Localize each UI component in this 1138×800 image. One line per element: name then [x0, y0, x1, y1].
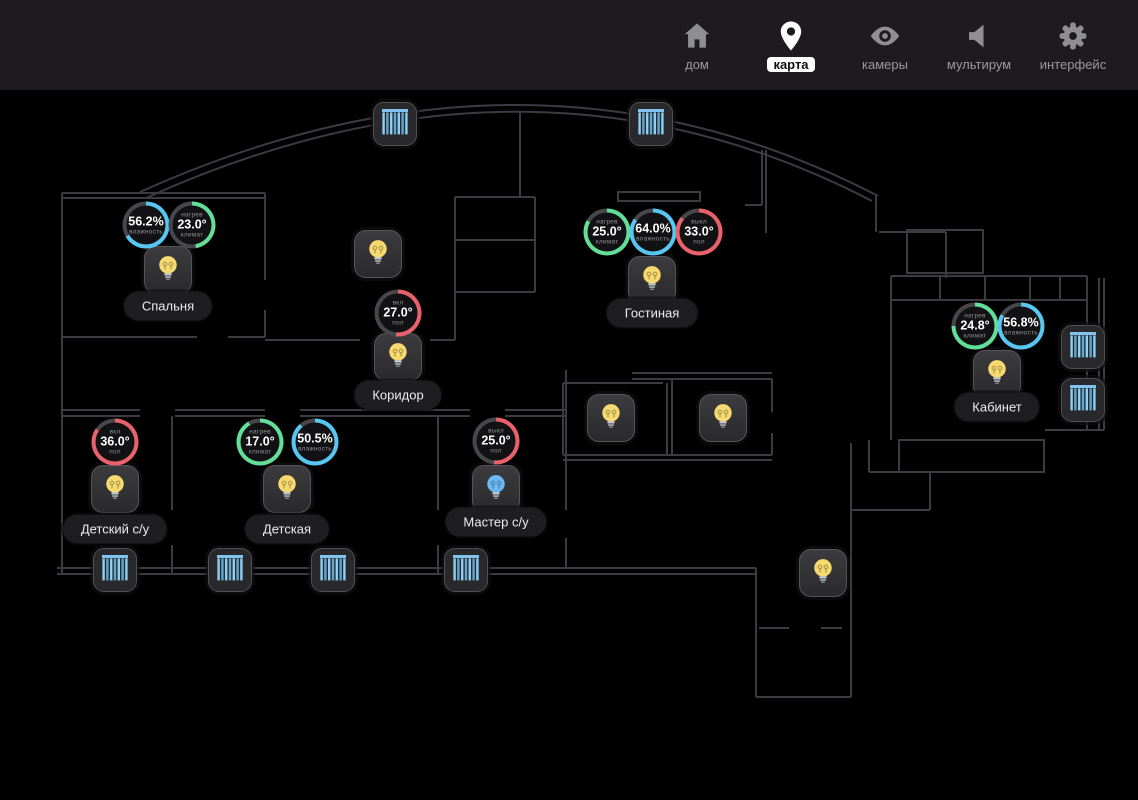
gauge-value: 24.8°	[960, 320, 989, 333]
gauge-readout: вкл 36.0° пол	[96, 423, 135, 462]
blinds-icon	[1069, 331, 1097, 364]
light-bulb-icon	[153, 253, 183, 288]
blinds-button-0[interactable]	[373, 102, 417, 146]
nav-item-interface[interactable]: интерфейс	[1026, 19, 1120, 72]
speaker-icon	[962, 19, 996, 53]
nav-item-multiroom[interactable]: мультирум	[932, 19, 1026, 72]
room-label-5[interactable]: Мастер с/у	[445, 508, 546, 537]
gauge-readout: нагрев 17.0° климат	[241, 423, 280, 462]
nav-label-home: дом	[685, 57, 709, 72]
light-bulb-button-2[interactable]	[374, 333, 422, 381]
floor-gauge-11[interactable]: выкл 25.0° пол	[473, 418, 520, 465]
blinds-button-1[interactable]	[629, 102, 673, 146]
gauge-value: 25.0°	[592, 226, 621, 239]
room-label-6[interactable]: Кабинет	[954, 393, 1039, 422]
gauge-type-label: пол	[693, 239, 704, 246]
top-navbar: дом карта камеры	[0, 0, 1138, 90]
gauge-type-label: влажность	[298, 445, 332, 452]
light-bulb-icon	[637, 263, 667, 298]
nav-label-map: карта	[767, 57, 814, 72]
room-label-3[interactable]: Детский с/у	[63, 515, 167, 544]
gauge-value: 64.0%	[635, 222, 670, 235]
light-bulb-button-3[interactable]	[628, 256, 676, 304]
gauge-readout: вкл 27.0° пол	[379, 294, 418, 333]
humidity-gauge-10[interactable]: 50.5% влажность	[292, 419, 339, 466]
gauge-value: 25.0°	[481, 435, 510, 448]
gauge-type-label: влажность	[1004, 329, 1038, 336]
gauge-type-label: климат	[964, 333, 986, 340]
home-icon	[680, 19, 714, 53]
light-bulb-button-10[interactable]	[799, 549, 847, 597]
gauge-value: 56.8%	[1003, 316, 1038, 329]
humidity-gauge-3[interactable]: 64.0% влажность	[630, 209, 677, 256]
floor-gauge-5[interactable]: вкл 27.0° пол	[375, 290, 422, 337]
gauge-readout: 56.2% влажность	[127, 206, 166, 245]
blinds-icon	[1069, 384, 1097, 417]
blinds-icon	[637, 108, 665, 141]
map-pin-icon	[774, 19, 808, 53]
gauge-value: 17.0°	[245, 436, 274, 449]
gauge-readout: нагрев 23.0° климат	[173, 206, 212, 245]
blinds-button-5[interactable]	[444, 548, 488, 592]
gauge-readout: 64.0% влажность	[634, 213, 673, 252]
light-bulb-button-8[interactable]	[472, 465, 520, 513]
humidity-gauge-7[interactable]: 56.8% влажность	[998, 303, 1045, 350]
blinds-button-7[interactable]	[1061, 378, 1105, 422]
gauge-readout: 50.5% влажность	[296, 423, 335, 462]
eye-icon	[868, 19, 902, 53]
climate-gauge-1[interactable]: нагрев 23.0° климат	[169, 202, 216, 249]
light-bulb-icon	[596, 401, 626, 436]
gauge-value: 27.0°	[383, 307, 412, 320]
nav-label-cameras: камеры	[862, 57, 908, 72]
blinds-button-2[interactable]	[93, 548, 137, 592]
light-bulb-icon	[481, 472, 511, 507]
blinds-button-6[interactable]	[1061, 325, 1105, 369]
gauge-type-label: пол	[490, 448, 501, 455]
gauge-value: 50.5%	[297, 432, 332, 445]
blinds-icon	[319, 554, 347, 587]
nav-item-cameras[interactable]: камеры	[838, 19, 932, 72]
light-bulb-icon	[363, 237, 393, 272]
nav-label-multiroom: мультирум	[947, 57, 1011, 72]
gauge-type-label: климат	[181, 232, 203, 239]
light-bulb-icon	[272, 472, 302, 507]
floor-gauge-4[interactable]: выкл 33.0° пол	[676, 209, 723, 256]
light-bulb-button-1[interactable]	[354, 230, 402, 278]
light-bulb-button-5[interactable]	[699, 394, 747, 442]
gauge-value: 56.2%	[128, 215, 163, 228]
room-label-0[interactable]: Спальня	[124, 292, 212, 321]
floor-gauge-8[interactable]: вкл 36.0° пол	[92, 419, 139, 466]
blinds-icon	[216, 554, 244, 587]
gauge-type-label: влажность	[636, 235, 670, 242]
light-bulb-button-4[interactable]	[587, 394, 635, 442]
room-label-1[interactable]: Гостиная	[607, 299, 698, 328]
gauge-value: 23.0°	[177, 219, 206, 232]
gauge-type-label: климат	[596, 239, 618, 246]
gauge-readout: нагрев 25.0° климат	[588, 213, 627, 252]
blinds-icon	[101, 554, 129, 587]
gauge-readout: 56.8% влажность	[1002, 307, 1041, 346]
blinds-icon	[452, 554, 480, 587]
gear-icon	[1056, 19, 1090, 53]
gauge-readout: выкл 25.0° пол	[477, 422, 516, 461]
gauge-readout: нагрев 24.8° климат	[956, 307, 995, 346]
light-bulb-button-9[interactable]	[973, 350, 1021, 398]
humidity-gauge-0[interactable]: 56.2% влажность	[123, 202, 170, 249]
nav-item-home[interactable]: дом	[650, 19, 744, 72]
gauge-type-label: климат	[249, 449, 271, 456]
smart-home-app: дом карта камеры	[0, 0, 1138, 800]
room-label-4[interactable]: Детская	[245, 515, 329, 544]
blinds-button-4[interactable]	[311, 548, 355, 592]
light-bulb-icon	[100, 472, 130, 507]
climate-gauge-6[interactable]: нагрев 24.8° климат	[952, 303, 999, 350]
light-bulb-icon	[383, 340, 413, 375]
gauge-type-label: влажность	[129, 228, 163, 235]
gauge-value: 36.0°	[100, 436, 129, 449]
gauge-value: 33.0°	[684, 226, 713, 239]
floorplan-walls	[0, 90, 1138, 800]
room-label-2[interactable]: Коридор	[354, 381, 441, 410]
climate-gauge-2[interactable]: нагрев 25.0° климат	[584, 209, 631, 256]
light-bulb-button-0[interactable]	[144, 246, 192, 294]
gauge-readout: выкл 33.0° пол	[680, 213, 719, 252]
light-bulb-button-7[interactable]	[263, 465, 311, 513]
blinds-button-3[interactable]	[208, 548, 252, 592]
light-bulb-button-6[interactable]	[91, 465, 139, 513]
climate-gauge-9[interactable]: нагрев 17.0° климат	[237, 419, 284, 466]
light-bulb-icon	[808, 556, 838, 591]
gauge-type-label: пол	[109, 449, 120, 456]
nav-item-map[interactable]: карта	[744, 19, 838, 72]
light-bulb-icon	[708, 401, 738, 436]
blinds-icon	[381, 108, 409, 141]
gauge-type-label: пол	[392, 320, 403, 327]
nav-label-interface: интерфейс	[1040, 57, 1106, 72]
light-bulb-icon	[982, 357, 1012, 392]
floorplan-map: 56.2% влажность нагрев 23.0° климат нагр…	[0, 90, 1138, 800]
